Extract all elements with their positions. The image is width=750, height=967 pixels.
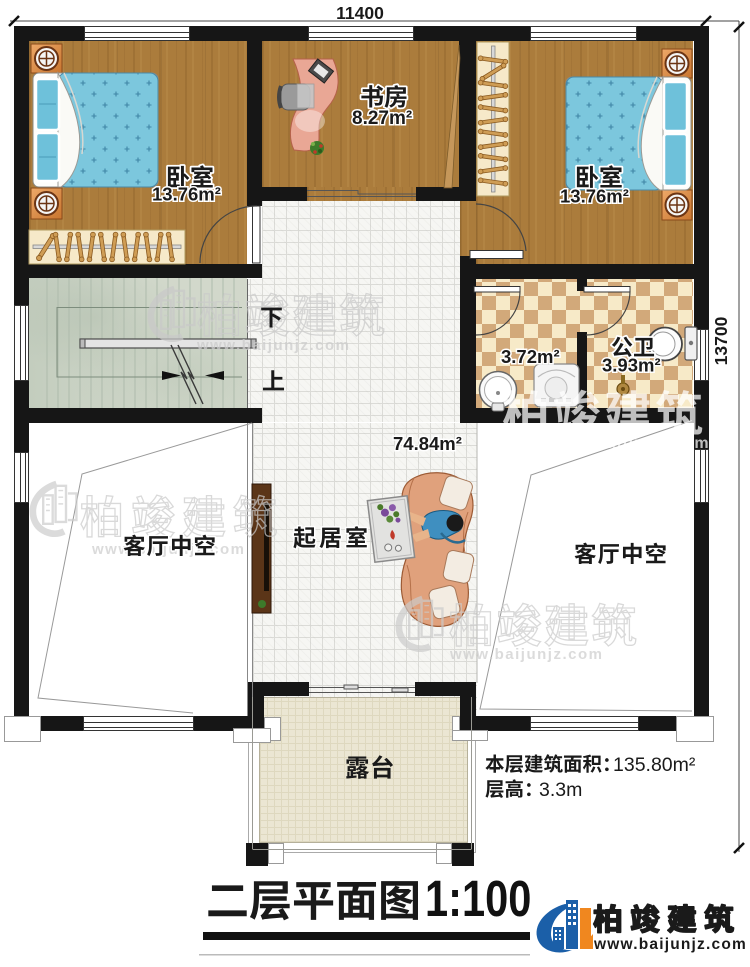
svg-text:www.baijunjz.com: www.baijunjz.com: [449, 646, 603, 663]
svg-text:13700: 13700: [711, 316, 731, 365]
svg-text:3.93m²: 3.93m²: [602, 355, 661, 376]
svg-text:13.76m²: 13.76m²: [560, 186, 629, 207]
svg-text:8.27m²: 8.27m²: [352, 108, 412, 129]
svg-text:74.84m²: 74.84m²: [393, 433, 462, 454]
svg-text:3.3m: 3.3m: [539, 779, 582, 801]
svg-text:13.76m²: 13.76m²: [152, 184, 221, 205]
svg-text:www.baijunjz.com: www.baijunjz.com: [547, 435, 710, 452]
svg-text:3.72m²: 3.72m²: [501, 346, 560, 367]
svg-text:www.baijunjz.com: www.baijunjz.com: [196, 337, 350, 354]
svg-text:1:100: 1:100: [425, 870, 531, 927]
svg-text:135.80m²: 135.80m²: [613, 754, 696, 776]
svg-text:www.baijunjz.com: www.baijunjz.com: [593, 936, 747, 953]
svg-text:11400: 11400: [336, 3, 384, 23]
